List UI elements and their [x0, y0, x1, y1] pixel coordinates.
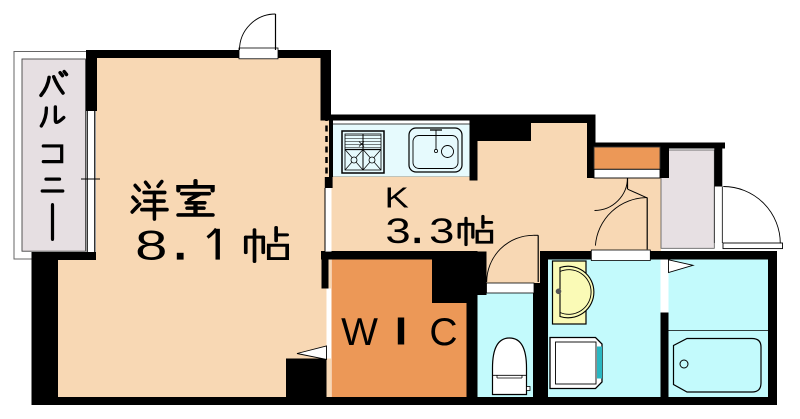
svg-text:8: 8: [135, 221, 167, 268]
svg-text:W: W: [341, 311, 378, 354]
svg-text:3: 3: [429, 211, 454, 251]
svg-text:C: C: [429, 311, 457, 354]
svg-text:K: K: [385, 181, 409, 214]
svg-text:3: 3: [385, 211, 410, 251]
